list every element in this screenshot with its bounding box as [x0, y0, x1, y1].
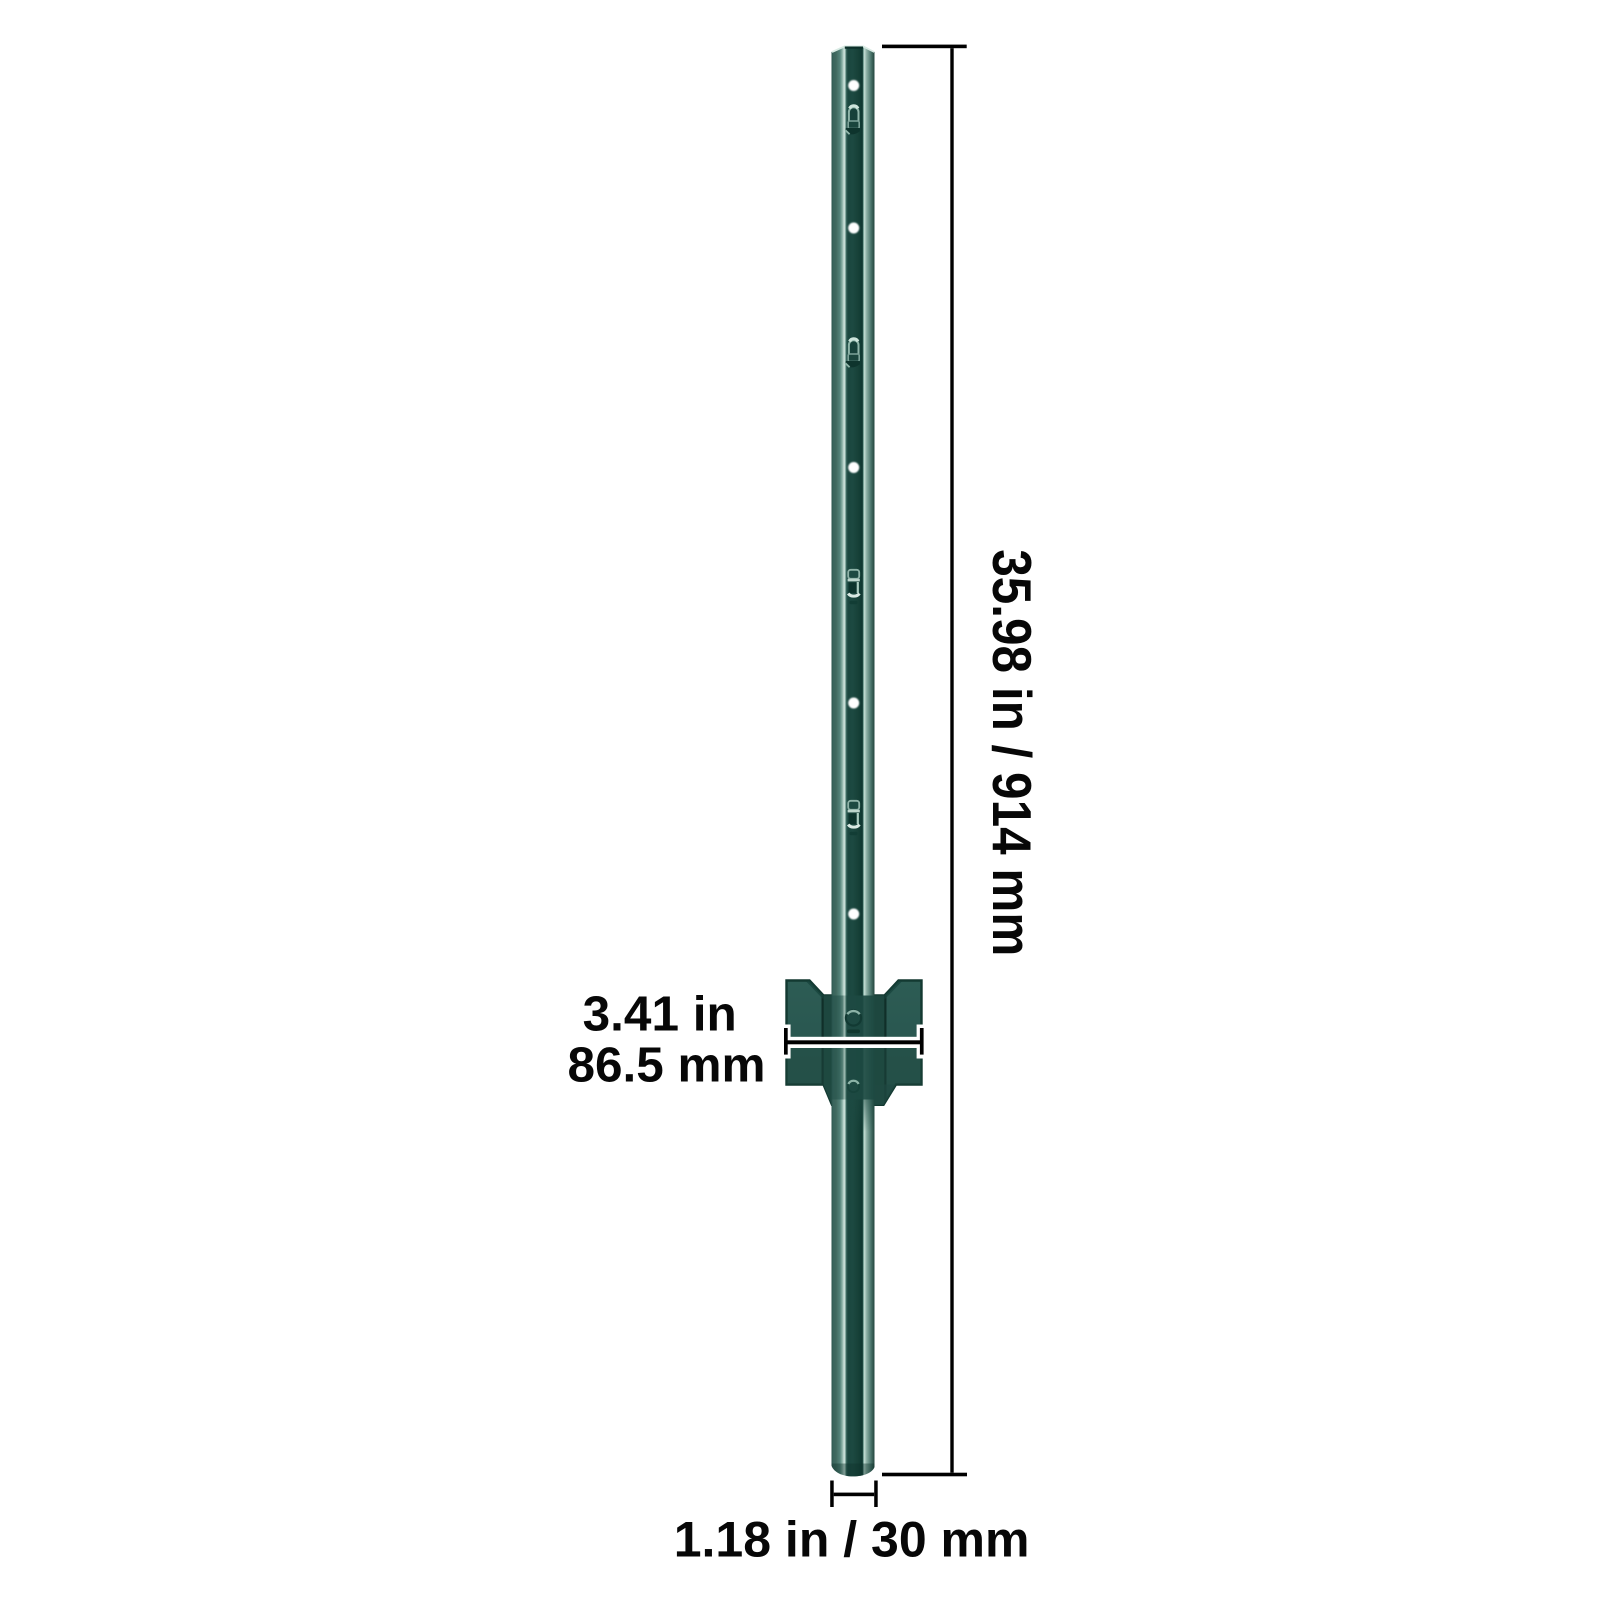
svg-text:35.98 in / 914 mm: 35.98 in / 914 mm	[980, 549, 1041, 956]
svg-text:3.41 in: 3.41 in	[583, 987, 737, 1042]
svg-text:86.5 mm: 86.5 mm	[567, 1038, 765, 1093]
svg-text:1.18 in / 30 mm: 1.18 in / 30 mm	[674, 1512, 1030, 1568]
